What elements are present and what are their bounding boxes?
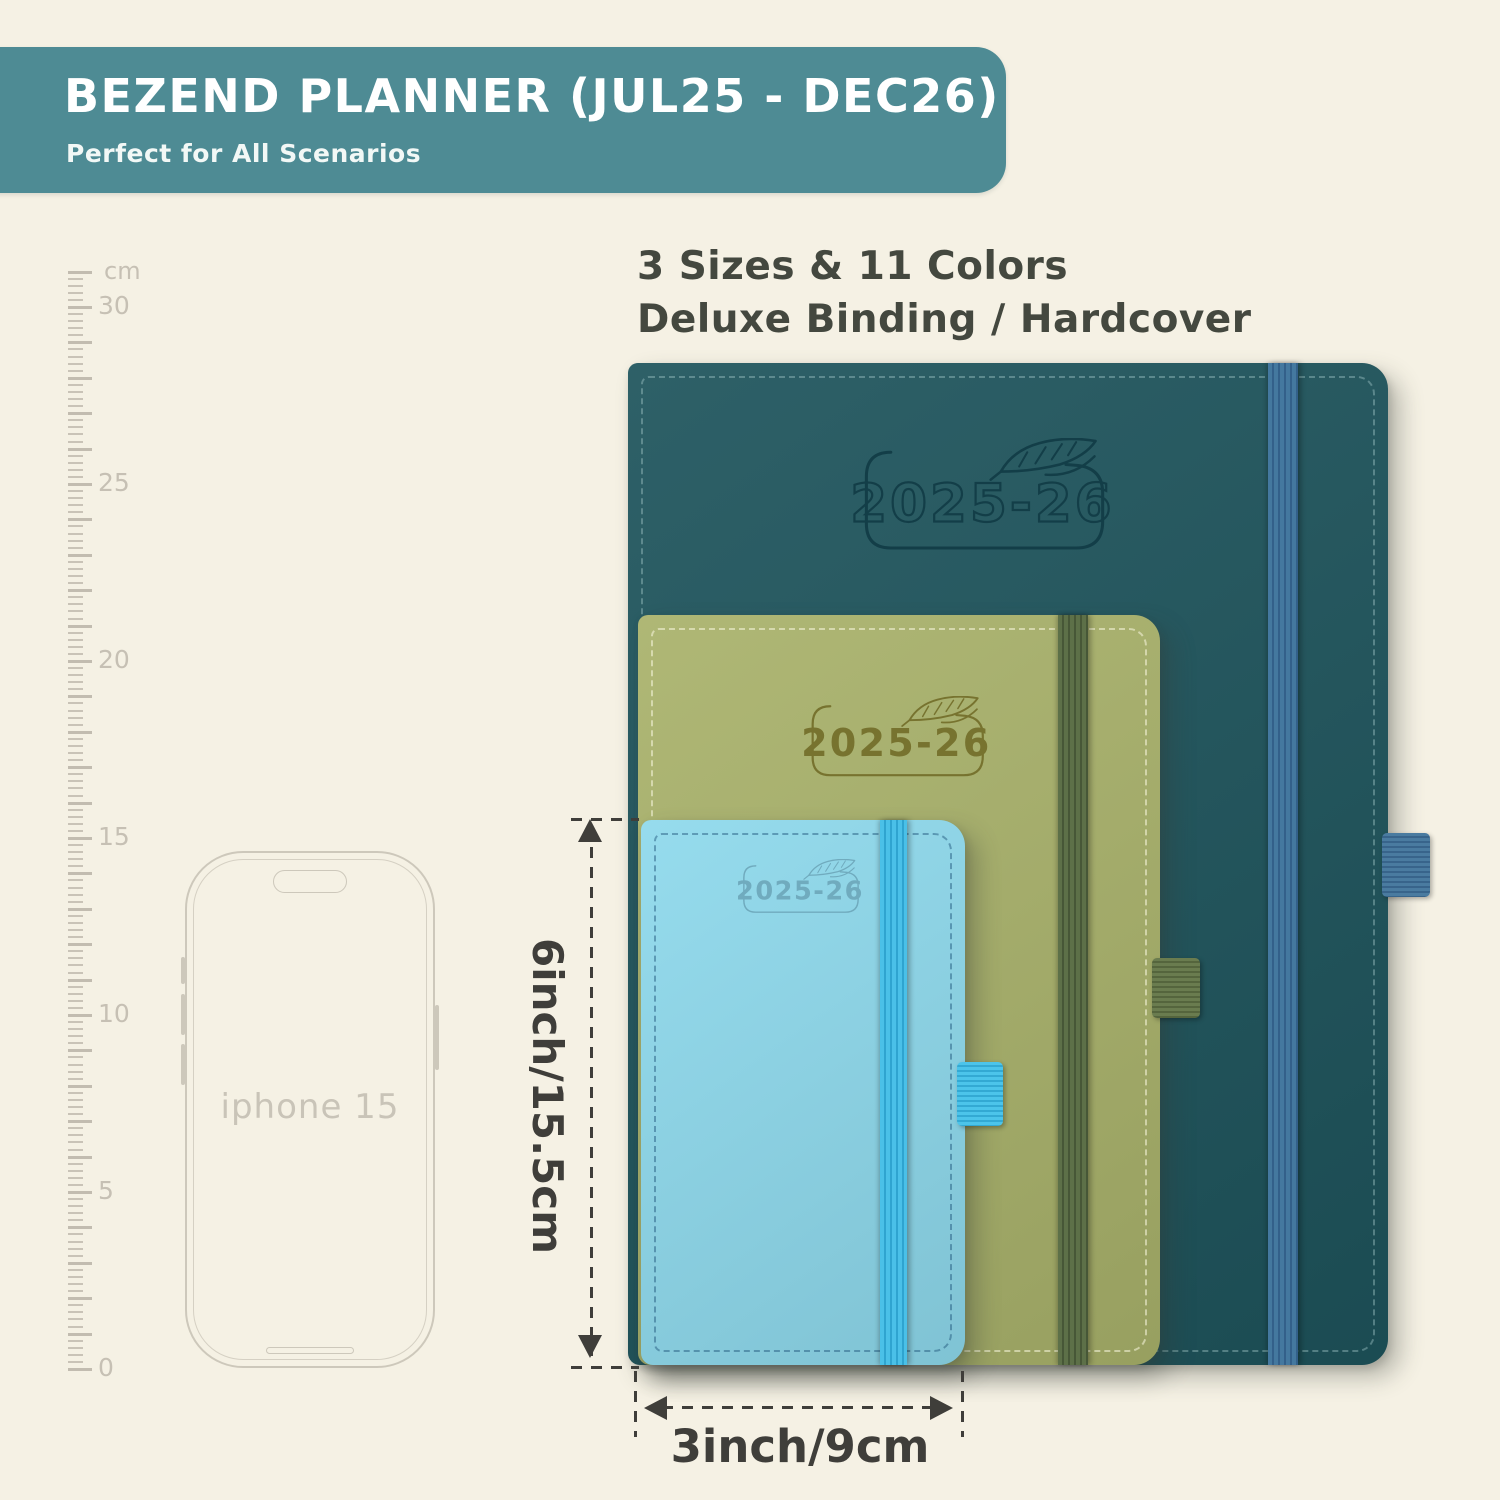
- ruler-tick: [68, 1085, 92, 1088]
- cover-year-text: 2025-26: [801, 721, 991, 765]
- ruler-tick: [68, 348, 83, 350]
- ruler-label-5: 5: [98, 1176, 114, 1205]
- ruler-tick: [68, 795, 83, 797]
- ruler-tick: [68, 1120, 92, 1123]
- ruler-tick: [68, 1333, 92, 1336]
- ruler-tick: [68, 865, 83, 867]
- ruler-tick: [68, 540, 83, 542]
- ruler-tick: [68, 1368, 92, 1371]
- pen-loop: [1382, 833, 1430, 897]
- ruler-tick: [68, 1099, 83, 1101]
- dim-tick-right: [961, 1371, 964, 1437]
- embossed-logo: 2025-26: [734, 859, 867, 918]
- ruler-tick: [68, 1233, 83, 1235]
- ruler-tick: [68, 1184, 83, 1186]
- ruler-tick: [68, 603, 83, 605]
- ruler-tick: [68, 993, 83, 995]
- ruler-tick: [68, 894, 83, 896]
- ruler-tick: [68, 568, 83, 570]
- ruler-tick: [68, 1141, 83, 1143]
- ruler-tick: [68, 752, 83, 754]
- ruler-tick: [68, 1049, 92, 1052]
- ruler-tick: [68, 391, 83, 393]
- ruler-label-30: 30: [98, 291, 130, 320]
- ruler-tick: [68, 1035, 83, 1037]
- cover-year-text: 2025-26: [850, 474, 1114, 535]
- ruler-tick: [68, 816, 83, 818]
- ruler-tick: [68, 851, 83, 853]
- ruler-tick: [68, 1340, 83, 1342]
- ruler-tick: [68, 1191, 92, 1194]
- ruler-tick: [68, 639, 83, 641]
- ruler-tick: [68, 887, 83, 889]
- ruler-tick: [68, 320, 83, 322]
- ruler-tick: [68, 1283, 83, 1285]
- ruler-tick: [68, 441, 83, 443]
- ruler-tick: [68, 1347, 83, 1349]
- ruler-tick: [68, 405, 83, 407]
- ruler-tick: [68, 1212, 83, 1214]
- pen-loop: [957, 1062, 1003, 1126]
- ruler-tick: [68, 292, 83, 294]
- ruler-tick: [68, 1156, 92, 1159]
- iphone-dynamic-island: [273, 870, 347, 893]
- headline-line1: 3 Sizes & 11 Colors: [637, 240, 1252, 293]
- dim-height-line: [590, 827, 593, 1356]
- cover-year-text: 2025-26: [736, 876, 864, 906]
- ruler-tick: [68, 1071, 83, 1073]
- ruler-tick: [68, 525, 83, 527]
- ruler-tick: [68, 1127, 83, 1129]
- ruler-tick: [68, 646, 83, 648]
- iphone-volume-up-button: [181, 994, 185, 1035]
- dim-tick-bottom: [571, 1366, 639, 1369]
- ruler-label-0: 0: [98, 1353, 114, 1382]
- ruler-tick: [68, 1311, 83, 1313]
- ruler-tick: [68, 936, 83, 938]
- elastic-band: [880, 820, 907, 1365]
- banner-subtitle: Perfect for All Scenarios: [66, 139, 421, 168]
- ruler-tick: [68, 1134, 83, 1136]
- ruler-tick: [68, 745, 83, 747]
- ruler-tick: [68, 448, 92, 451]
- ruler-tick: [68, 596, 83, 598]
- ruler-tick: [68, 363, 83, 365]
- ruler-tick: [68, 1092, 83, 1094]
- ruler-tick: [68, 313, 83, 315]
- ruler-tick: [68, 618, 83, 620]
- ruler-tick: [68, 1056, 83, 1058]
- headline-line2: Deluxe Binding / Hardcover: [637, 293, 1252, 346]
- ruler-tick: [68, 957, 83, 959]
- ruler-tick: [68, 922, 83, 924]
- ruler-tick: [68, 1149, 83, 1151]
- ruler-tick: [68, 681, 83, 683]
- planner-small: 2025-26: [641, 820, 965, 1365]
- ruler-tick: [68, 787, 83, 789]
- ruler-tick: [68, 695, 92, 698]
- ruler-label-25: 25: [98, 468, 130, 497]
- ruler-tick: [68, 1241, 83, 1243]
- ruler-tick: [68, 780, 83, 782]
- arrow-left-icon: [644, 1396, 667, 1420]
- ruler-tick: [68, 1226, 92, 1229]
- ruler-tick: [68, 717, 83, 719]
- embossed-logo: 2025-26: [846, 438, 1121, 560]
- ruler-tick: [68, 1248, 83, 1250]
- ruler-tick: [68, 1064, 83, 1066]
- ruler-tick: [68, 1000, 83, 1002]
- ruler-tick: [68, 547, 83, 549]
- ruler-tick: [68, 511, 83, 513]
- ruler-tick: [68, 802, 92, 805]
- ruler-tick: [68, 731, 92, 734]
- ruler-tick: [68, 1014, 92, 1017]
- ruler-tick: [68, 943, 92, 946]
- ruler-tick: [68, 334, 83, 336]
- ruler-tick: [68, 674, 83, 676]
- iphone-power-button: [435, 1005, 439, 1070]
- ruler-tick: [68, 766, 92, 769]
- ruler-tick: [68, 497, 83, 499]
- ruler-tick: [68, 1170, 83, 1172]
- ruler-tick: [68, 462, 83, 464]
- ruler-tick: [68, 483, 92, 486]
- ruler-tick: [68, 341, 92, 344]
- ruler-tick: [68, 433, 83, 435]
- ruler-tick: [68, 561, 83, 563]
- ruler-tick: [68, 830, 83, 832]
- pen-loop: [1152, 958, 1200, 1018]
- ruler-tick: [68, 1042, 83, 1044]
- dim-width-line: [662, 1406, 934, 1409]
- arrow-down-icon: [578, 1335, 602, 1358]
- ruler-tick: [68, 299, 83, 301]
- ruler-tick: [68, 1219, 83, 1221]
- ruler-tick: [68, 837, 92, 840]
- ruler-tick: [68, 625, 92, 628]
- ruler-tick: [68, 823, 83, 825]
- ruler-tick: [68, 702, 83, 704]
- ruler-tick: [68, 1297, 92, 1300]
- ruler-tick: [68, 327, 83, 329]
- ruler-tick: [68, 582, 83, 584]
- ruler-tick: [68, 929, 83, 931]
- ruler-tick: [68, 426, 83, 428]
- ruler-tick: [68, 688, 83, 690]
- ruler-tick: [68, 285, 83, 287]
- ruler-tick: [68, 908, 92, 911]
- ruler-tick: [68, 356, 83, 358]
- arrow-right-icon: [930, 1396, 953, 1420]
- ruler-tick: [68, 575, 83, 577]
- elastic-band: [1058, 615, 1088, 1365]
- ruler-tick: [68, 1269, 83, 1271]
- ruler-unit-label: cm: [104, 257, 141, 285]
- ruler-tick: [68, 1354, 83, 1356]
- ruler-tick: [68, 710, 83, 712]
- iphone-label: iphone 15: [187, 1087, 433, 1127]
- ruler-tick: [68, 773, 83, 775]
- ruler-tick: [68, 858, 83, 860]
- ruler-tick: [68, 738, 83, 740]
- ruler-tick: [68, 271, 92, 274]
- ruler-tick: [68, 490, 83, 492]
- ruler-tick: [68, 1198, 83, 1200]
- ruler-tick: [68, 370, 83, 372]
- ruler-tick: [68, 667, 83, 669]
- ruler-label-15: 15: [98, 822, 130, 851]
- ruler-tick: [68, 844, 83, 846]
- ruler-tick: [68, 533, 83, 535]
- ruler-tick: [68, 1205, 83, 1207]
- product-image: BEZEND PLANNER (JUL25 - DEC26) Perfect f…: [0, 0, 1500, 1500]
- ruler-tick: [68, 986, 83, 988]
- ruler-label-20: 20: [98, 645, 130, 674]
- ruler-tick: [68, 901, 83, 903]
- ruler-tick: [68, 950, 83, 952]
- ruler-tick: [68, 1021, 83, 1023]
- ruler-tick: [68, 1255, 83, 1257]
- ruler-tick: [68, 1163, 83, 1165]
- iphone-outline: iphone 15: [185, 851, 435, 1368]
- ruler-tick: [68, 278, 83, 280]
- ruler-tick: [68, 759, 83, 761]
- ruler-tick: [68, 1276, 83, 1278]
- ruler-tick: [68, 1007, 83, 1009]
- ruler-label-10: 10: [98, 999, 130, 1028]
- ruler-tick: [68, 476, 83, 478]
- ruler-tick: [68, 1304, 83, 1306]
- ruler-tick: [68, 1106, 83, 1108]
- ruler-tick: [68, 469, 83, 471]
- ruler-tick: [68, 915, 83, 917]
- ruler-tick: [68, 632, 83, 634]
- ruler-tick: [68, 412, 92, 415]
- ruler-tick: [68, 419, 83, 421]
- banner: BEZEND PLANNER (JUL25 - DEC26) Perfect f…: [0, 47, 1006, 193]
- ruler-tick: [68, 518, 92, 521]
- ruler-tick: [68, 398, 83, 400]
- ruler-tick: [68, 964, 83, 966]
- iphone-mute-button: [181, 957, 185, 984]
- width-dimension-label: 3inch/9cm: [640, 1420, 960, 1473]
- ruler-tick: [68, 1318, 83, 1320]
- ruler-tick: [68, 306, 92, 309]
- ruler-tick: [68, 879, 83, 881]
- ruler-tick: [68, 554, 92, 557]
- dim-tick-left: [634, 1371, 637, 1437]
- embossed-logo: 2025-26: [798, 696, 996, 784]
- elastic-band: [1268, 363, 1298, 1365]
- ruler-tick: [68, 1326, 83, 1328]
- banner-title: BEZEND PLANNER (JUL25 - DEC26): [64, 69, 1000, 123]
- ruler-tick: [68, 724, 83, 726]
- ruler-tick: [68, 1113, 83, 1115]
- ruler-tick: [68, 972, 83, 974]
- arrow-up-icon: [578, 819, 602, 842]
- headline: 3 Sizes & 11 Colors Deluxe Binding / Har…: [637, 240, 1252, 346]
- height-dimension-label: 6inch/15.5cm: [528, 876, 572, 1316]
- ruler-tick: [68, 979, 92, 982]
- iphone-bottom-bar: [266, 1347, 354, 1354]
- ruler-tick: [68, 660, 92, 663]
- ruler-tick: [68, 384, 83, 386]
- ruler-tick: [68, 809, 83, 811]
- ruler-tick: [68, 455, 83, 457]
- ruler-tick: [68, 1028, 83, 1030]
- ruler-tick: [68, 872, 92, 875]
- ruler-tick: [68, 1361, 83, 1363]
- ruler-tick: [68, 1078, 83, 1080]
- ruler-tick: [68, 1290, 83, 1292]
- ruler-tick: [68, 1177, 83, 1179]
- ruler-tick: [68, 504, 83, 506]
- ruler-tick: [68, 653, 83, 655]
- ruler-tick: [68, 589, 92, 592]
- ruler-tick: [68, 610, 83, 612]
- ruler-tick: [68, 1262, 92, 1265]
- ruler-tick: [68, 377, 92, 380]
- iphone-volume-down-button: [181, 1044, 185, 1085]
